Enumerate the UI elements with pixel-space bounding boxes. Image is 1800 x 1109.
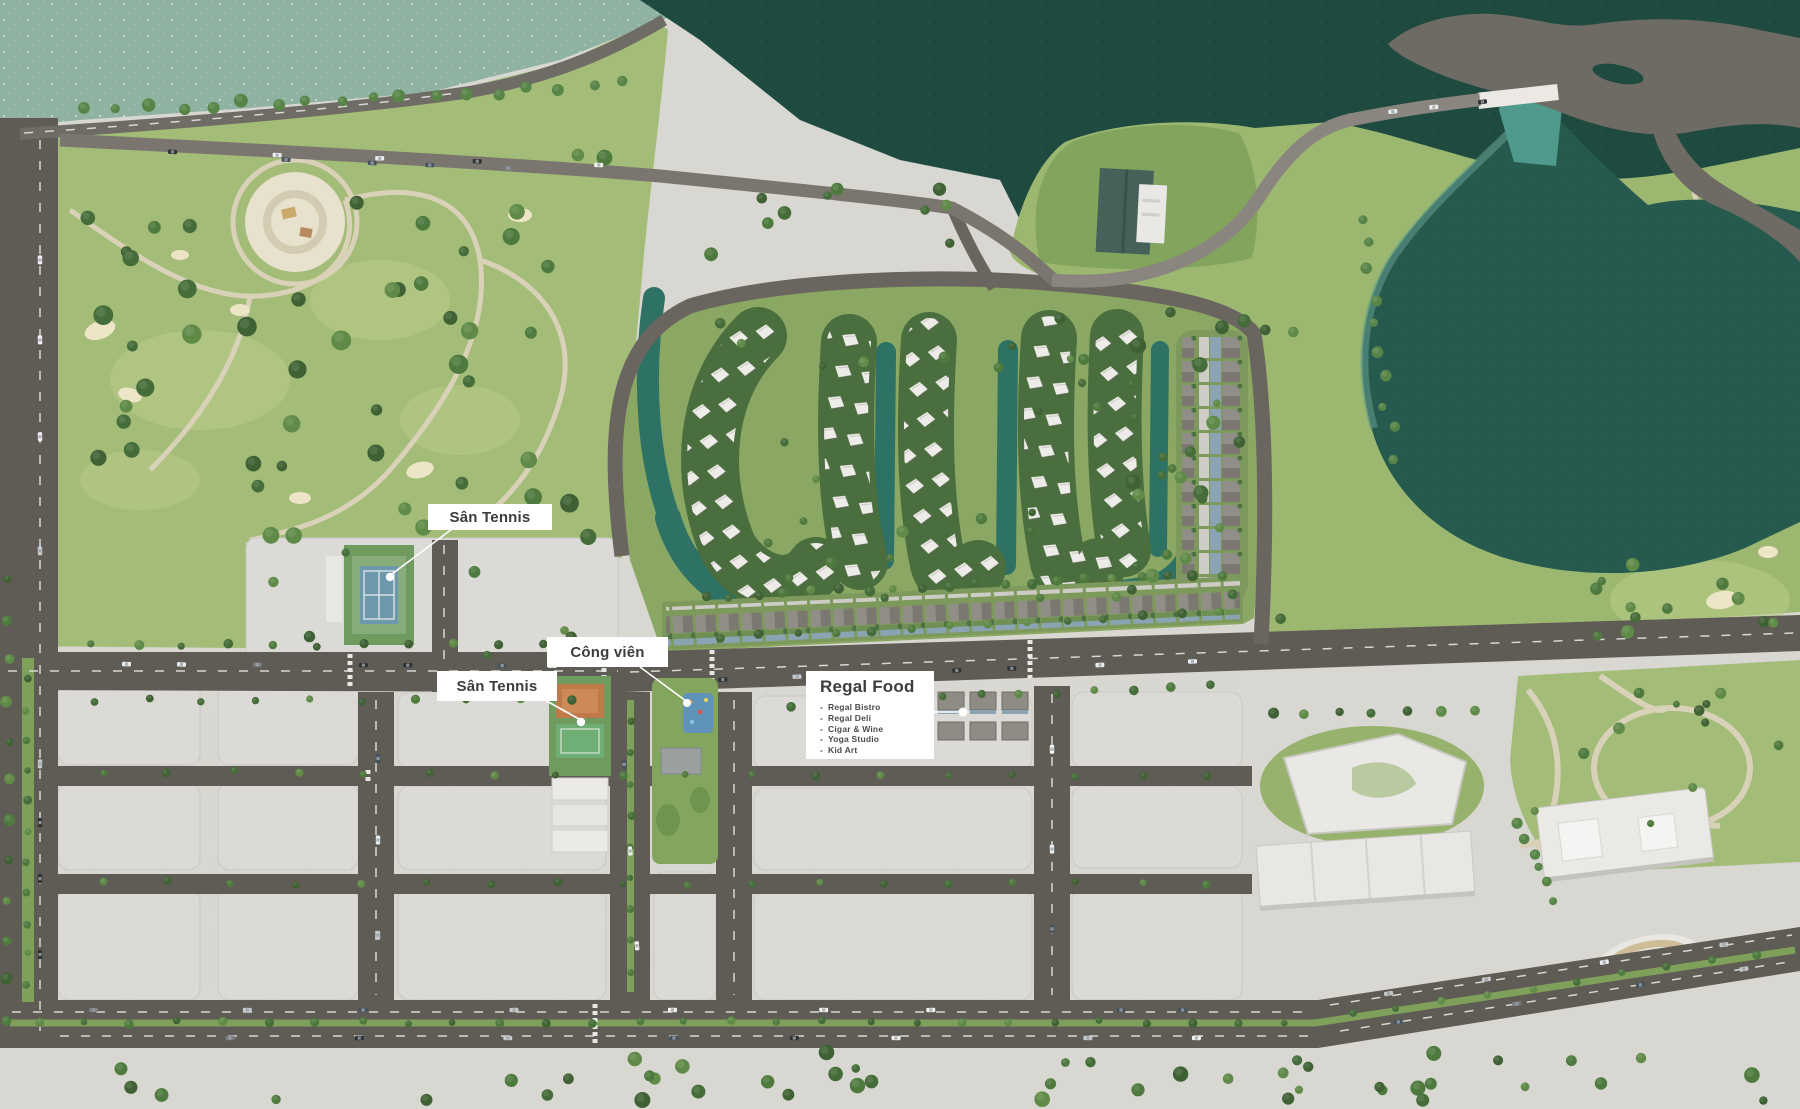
- label-anchor-dot: [577, 718, 585, 726]
- list-item: Yoga Studio: [820, 734, 883, 745]
- list-item: Regal Deli: [820, 713, 883, 724]
- label-anchor-dot: [683, 699, 691, 707]
- tennis-court-2: [549, 676, 611, 852]
- regal-food-title: Regal Food: [820, 677, 915, 697]
- label-text: Công viên: [570, 644, 644, 661]
- clubhouse-headland: [1035, 125, 1257, 269]
- list-item: Regal Bistro: [820, 702, 883, 713]
- park-plaza: [245, 172, 345, 272]
- masterplan-stage: Sân Tennis Công viên Sân Tennis Regal Fo…: [0, 0, 1800, 1109]
- label-tennis-court-1: Sân Tennis: [428, 504, 552, 530]
- label-text: Sân Tennis: [450, 509, 531, 526]
- villa-enclave: [622, 283, 1259, 652]
- label-anchor-dot: [386, 573, 394, 581]
- label-anchor-dot: [959, 708, 968, 717]
- canopy-buildings: [552, 778, 608, 852]
- label-text: Sân Tennis: [457, 678, 538, 695]
- label-regal-food: Regal Food Regal Bistro Regal Deli Cigar…: [806, 671, 934, 759]
- label-tennis-court-2: Sân Tennis: [437, 671, 557, 701]
- regal-food-list: Regal Bistro Regal Deli Cigar & Wine Yog…: [816, 702, 883, 756]
- label-cong-vien: Công viên: [547, 637, 668, 667]
- masterplan-map: [0, 0, 1800, 1109]
- list-item: Cigar & Wine: [820, 724, 883, 735]
- list-item: Kid Art: [820, 745, 883, 756]
